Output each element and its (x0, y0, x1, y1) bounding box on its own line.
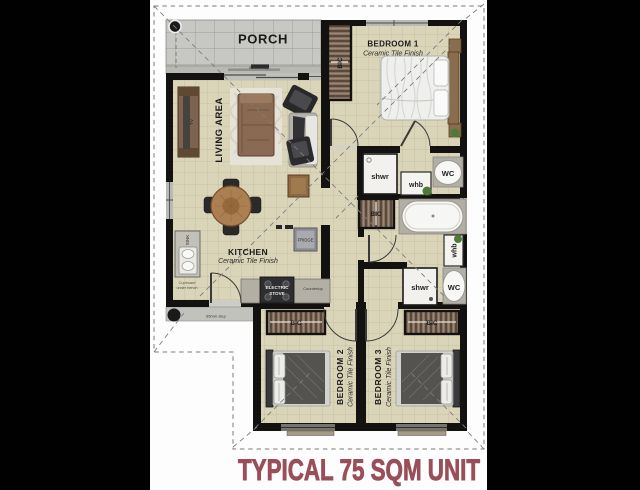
svg-text:whb: whb (408, 182, 423, 189)
svg-text:BIC: BIC (337, 57, 344, 69)
svg-text:under bench: under bench (176, 286, 197, 290)
svg-text:whb: whb (452, 244, 459, 259)
svg-text:WC: WC (442, 169, 455, 178)
svg-text:85mm step: 85mm step (206, 314, 227, 319)
svg-text:LIVING AREA: LIVING AREA (214, 97, 225, 162)
svg-text:Ceramic Tile Finish: Ceramic Tile Finish (363, 51, 423, 58)
svg-text:BEDROOM 1: BEDROOM 1 (367, 40, 418, 49)
svg-text:shwr: shwr (411, 283, 429, 292)
svg-text:FRIDGE: FRIDGE (298, 238, 314, 243)
svg-text:TYPICAL 75 SQM UNIT: TYPICAL 75 SQM UNIT (238, 454, 480, 487)
svg-text:WC: WC (448, 283, 461, 292)
svg-text:STOVE: STOVE (269, 291, 285, 296)
svg-text:Ceramic Tile Finish: Ceramic Tile Finish (348, 347, 355, 407)
svg-text:Ceramic Tile Finish: Ceramic Tile Finish (218, 258, 278, 265)
svg-text:TV: TV (189, 119, 194, 125)
svg-text:PORCH: PORCH (238, 32, 288, 47)
svg-text:Ceramic Tile Finish: Ceramic Tile Finish (386, 347, 393, 407)
svg-text:BIC: BIC (290, 320, 302, 327)
svg-text:KITCHEN: KITCHEN (228, 247, 268, 257)
svg-text:BEDROOM 3: BEDROOM 3 (373, 349, 383, 405)
svg-text:SINK: SINK (185, 235, 190, 246)
svg-text:BIC: BIC (370, 211, 382, 218)
svg-text:85mm step: 85mm step (249, 65, 270, 70)
svg-text:Cupboard: Cupboard (179, 281, 196, 285)
svg-text:Countertop: Countertop (303, 286, 324, 291)
svg-text:shwr: shwr (371, 172, 389, 181)
svg-text:ELECTRIC: ELECTRIC (266, 285, 290, 290)
svg-text:BEDROOM 2: BEDROOM 2 (335, 349, 345, 405)
svg-text:BIC: BIC (426, 320, 438, 327)
